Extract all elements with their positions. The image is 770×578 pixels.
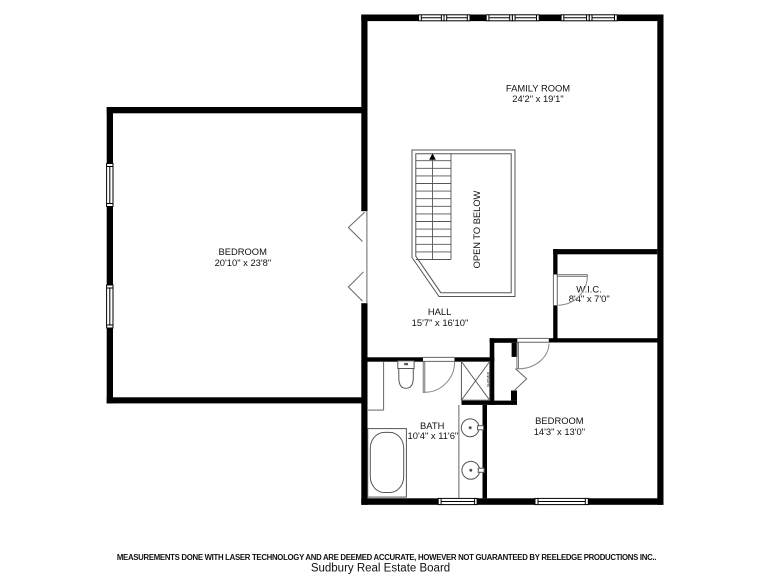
svg-text:14'3" x 13'0": 14'3" x 13'0" — [534, 426, 585, 437]
svg-text:BEDROOM: BEDROOM — [535, 415, 584, 426]
svg-text:MEASUREMENTS DONE WITH LASER T: MEASUREMENTS DONE WITH LASER TECHNOLOGY … — [117, 553, 656, 562]
svg-text:8'4" x 7'0": 8'4" x 7'0" — [569, 293, 610, 304]
svg-text:Sudbury Real Estate Board: Sudbury Real Estate Board — [311, 563, 450, 575]
svg-text:OPEN TO BELOW: OPEN TO BELOW — [472, 190, 482, 268]
svg-text:10'4" x 11'6": 10'4" x 11'6" — [408, 430, 459, 441]
svg-text:24'2" x 19'1": 24'2" x 19'1" — [512, 93, 563, 104]
svg-text:SHOWER: SHOWER — [486, 371, 490, 387]
svg-text:BEDROOM: BEDROOM — [218, 246, 267, 257]
svg-text:HALL: HALL — [428, 306, 451, 317]
svg-text:FAMILY ROOM: FAMILY ROOM — [506, 82, 570, 93]
svg-text:BATH: BATH — [420, 420, 444, 431]
svg-text:15'7" x 16'10": 15'7" x 16'10" — [412, 317, 469, 328]
svg-text:20'10" x 23'8": 20'10" x 23'8" — [215, 257, 272, 268]
